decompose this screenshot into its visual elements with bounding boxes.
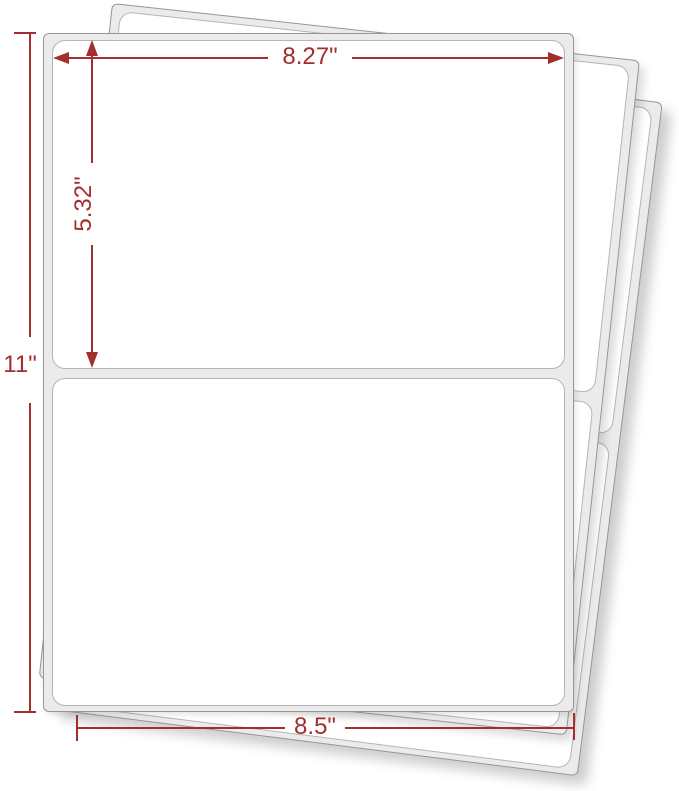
dim-line (29, 403, 31, 712)
dim-sheet-height-value: 11" (0, 352, 40, 378)
dim-label-width-value: 8.27" (268, 44, 352, 70)
label-sheet-front (43, 33, 574, 712)
arrowhead-down-icon (86, 352, 98, 368)
dim-line (91, 245, 93, 355)
dim-line (352, 57, 551, 59)
dim-tick (14, 32, 36, 34)
dim-line (29, 33, 31, 337)
arrowhead-right-icon (548, 52, 564, 64)
product-dimension-diagram: 8.27" 5.32" 11" 8.5" (0, 0, 679, 791)
dim-line (66, 57, 268, 59)
label-sticker-top (52, 40, 565, 369)
dim-line (345, 727, 574, 729)
label-sticker-bottom (52, 378, 565, 706)
dim-line (91, 54, 93, 163)
dim-tick (573, 713, 575, 740)
dim-sheet-width-value: 8.5" (285, 714, 345, 740)
dim-line (77, 727, 285, 729)
dim-tick (14, 711, 36, 713)
dim-label-height-value: 5.32" (71, 176, 97, 231)
